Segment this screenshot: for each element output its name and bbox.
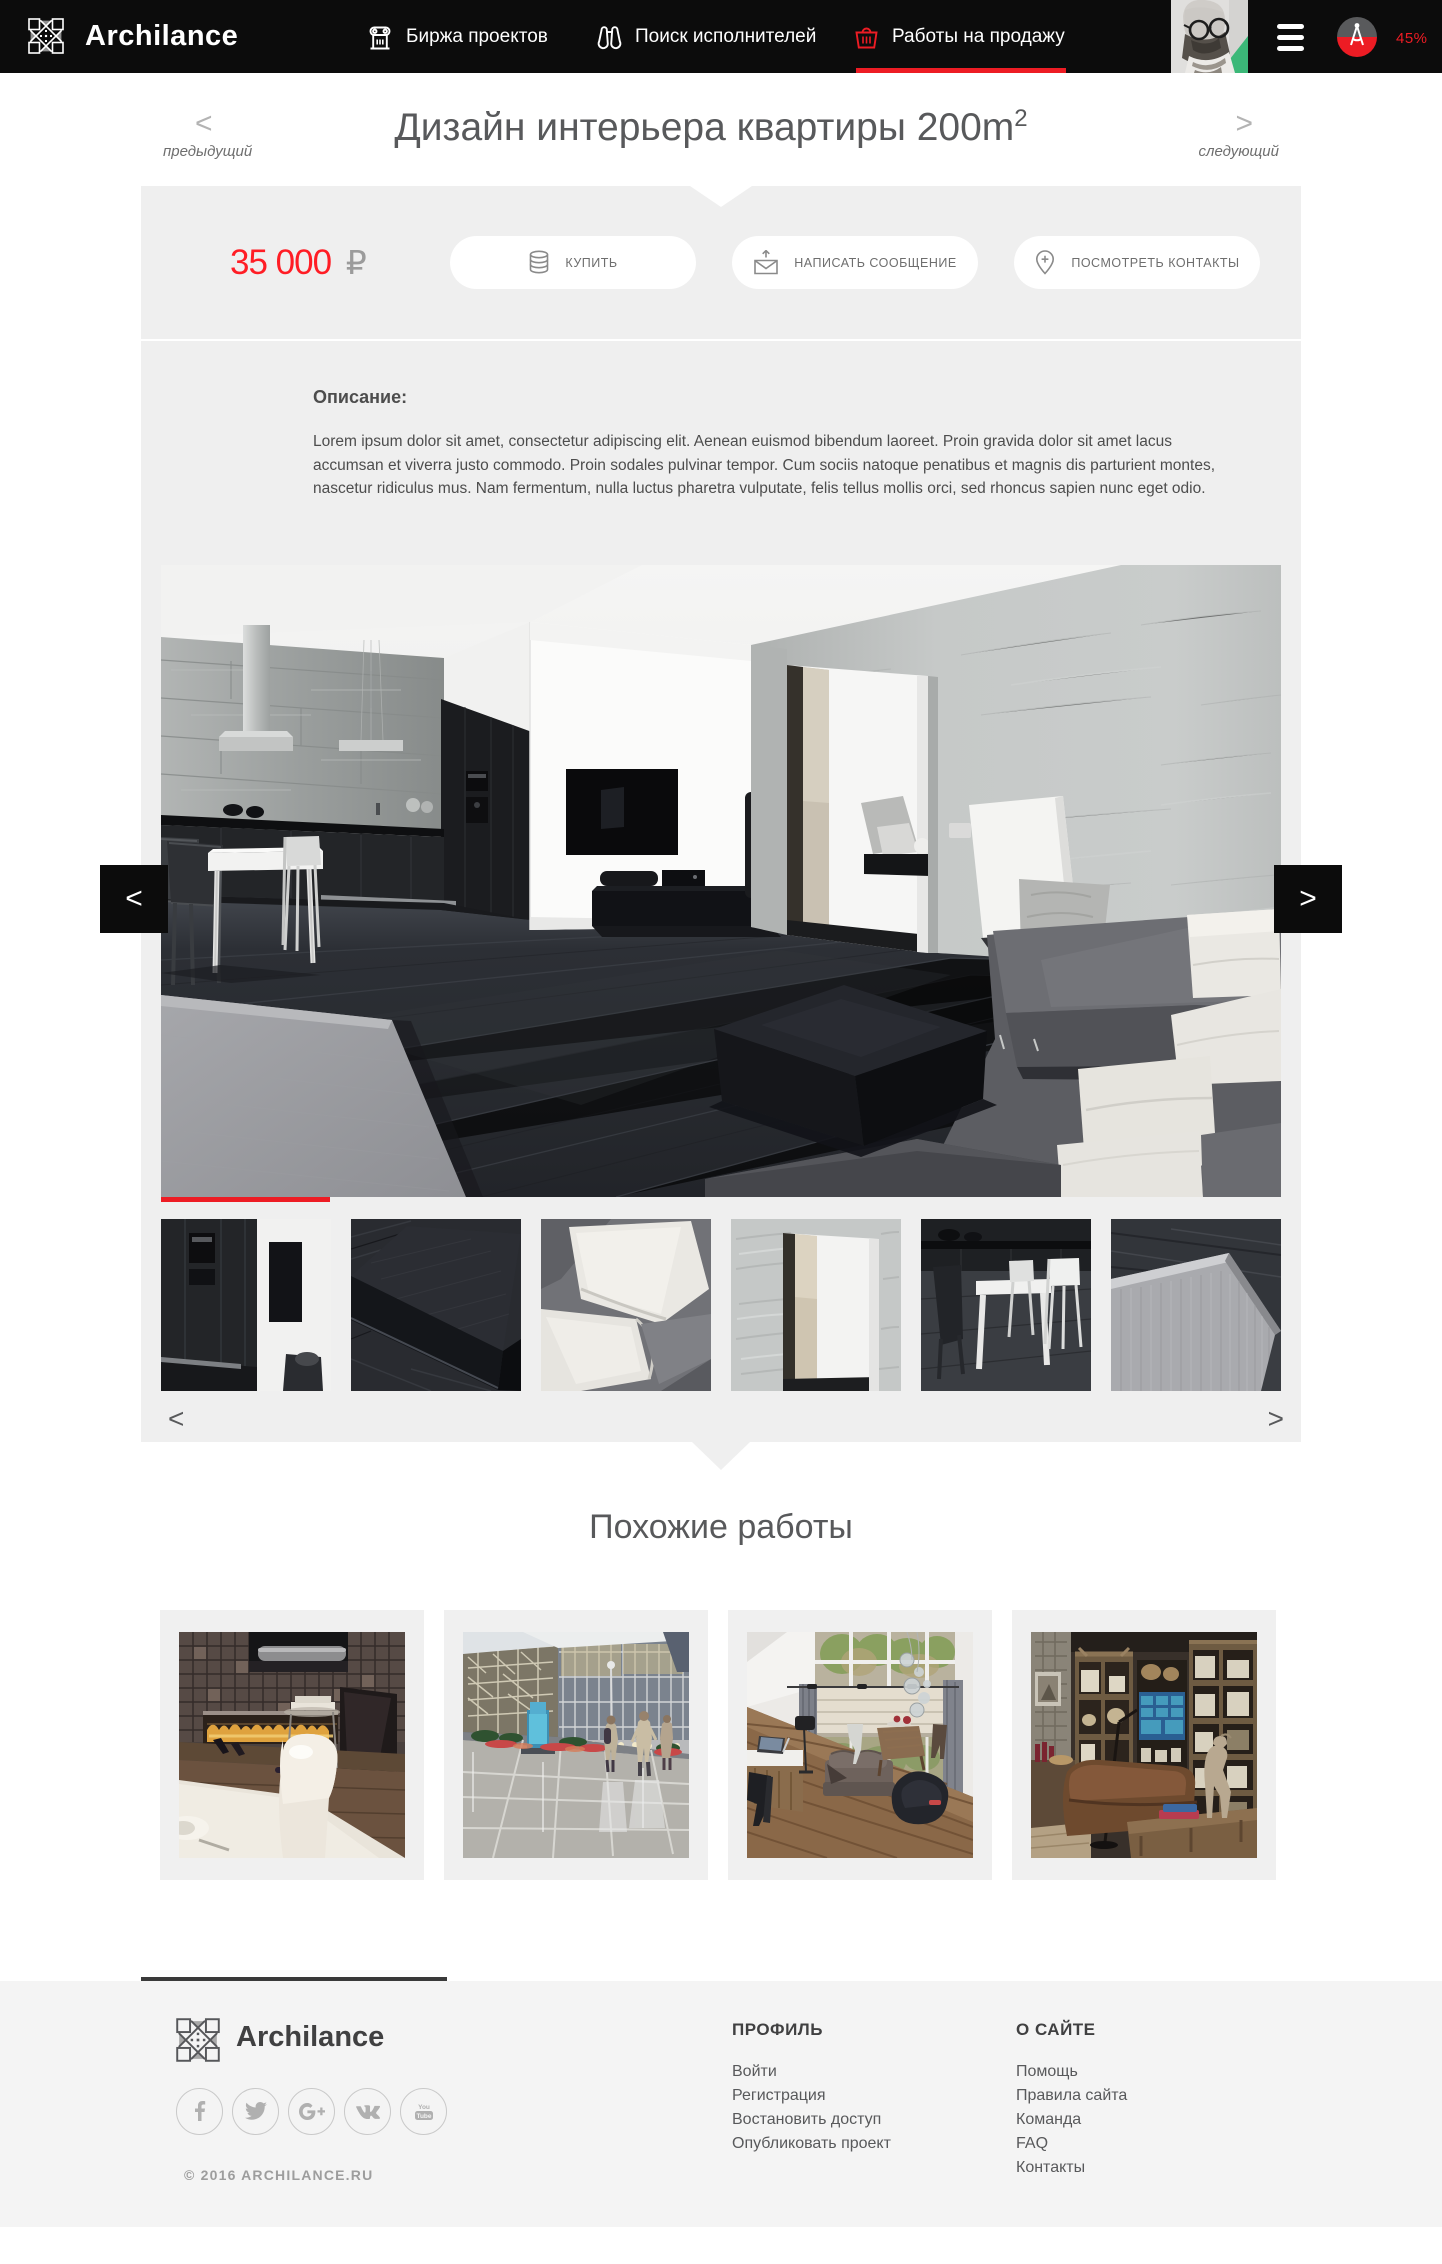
svg-text:Tube: Tube: [416, 2113, 431, 2120]
svg-text:You: You: [418, 2104, 430, 2111]
